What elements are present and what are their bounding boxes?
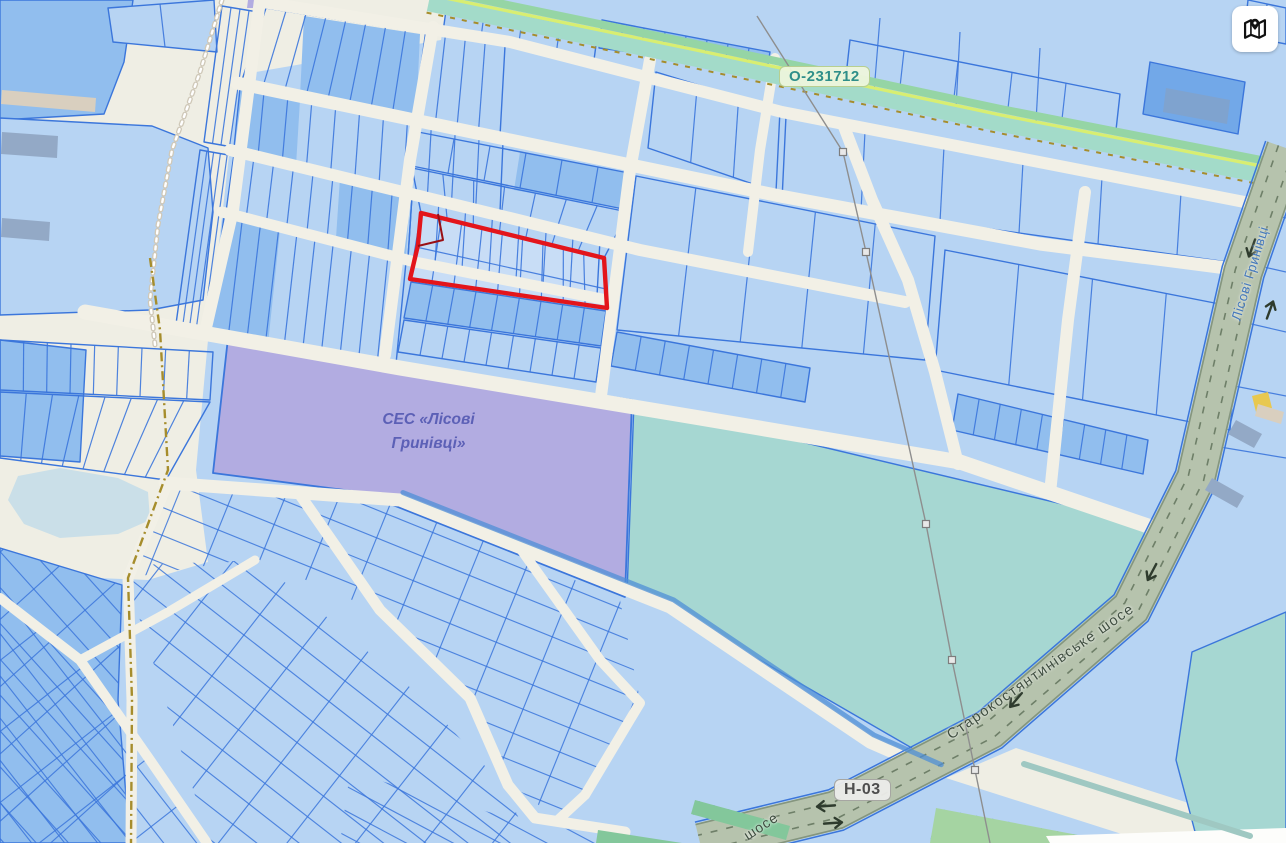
map-canvas[interactable]: [0, 0, 1286, 843]
map-button[interactable]: [1232, 6, 1278, 52]
map-view: СЕС «Лісові Гринівці» Старокостянтинівсь…: [0, 0, 1286, 843]
map-pin-icon: [1241, 15, 1269, 43]
